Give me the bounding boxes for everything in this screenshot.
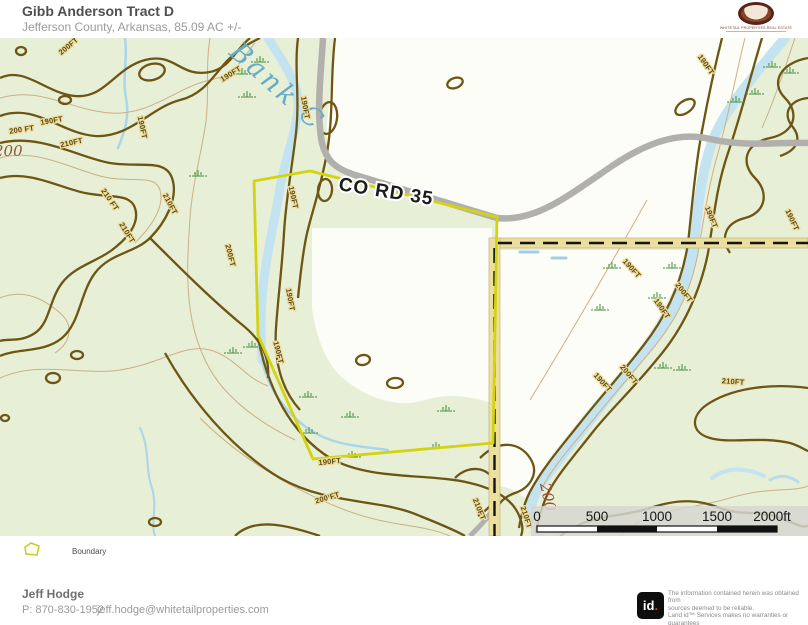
header: Gibb Anderson Tract D Jefferson County, … [0, 0, 808, 38]
scale-tick-label: 1000 [642, 509, 672, 524]
logo-divider [726, 31, 786, 32]
legend: Boundary [0, 536, 808, 570]
footer: Jeff Hodge P: 870-830-1952 jeff.hodge@wh… [0, 570, 808, 625]
scale-bar: 0500100015002000ft [531, 506, 808, 536]
whitetail-antler-oval-icon [738, 2, 774, 25]
agent-name: Jeff Hodge [22, 587, 84, 601]
disclaimer-line: Land id™ Services makes no warranties or… [668, 612, 806, 625]
map-report-page: Gibb Anderson Tract D Jefferson County, … [0, 0, 808, 625]
scale-tick-label: 1500 [702, 509, 732, 524]
page-title: Gibb Anderson Tract D [22, 3, 174, 19]
whitetail-properties-logo: WHITETAIL PROPERTIES REAL ESTATE [718, 2, 794, 32]
agent-email: jeff.hodge@whitetailproperties.com [97, 604, 269, 616]
page-subtitle: Jefferson County, Arkansas, 85.09 AC +/- [22, 20, 241, 34]
boundary-swatch-icon [24, 542, 40, 557]
disclaimer-line: sources deemed to be reliable. [668, 605, 806, 612]
map-canvas[interactable]: Bank C CO RD 35 200 200 200FT190FT190FT2… [0, 38, 808, 536]
contour-label: 210FT [722, 376, 745, 387]
scale-tick-label: 2000ft [753, 509, 791, 524]
land-id-logo: id. [637, 592, 664, 619]
scale-tick-label: 0 [533, 509, 541, 524]
elevation-label-left: 200 [0, 142, 23, 160]
disclaimer-line: The information contained herein was obt… [668, 590, 806, 605]
whitetail-logo-text: WHITETAIL PROPERTIES REAL ESTATE [718, 26, 794, 30]
agent-phone: P: 870-830-1952 [22, 604, 104, 616]
scale-tick-label: 500 [586, 509, 609, 524]
disclaimer-text: The information contained herein was obt… [668, 590, 806, 625]
legend-item-boundary: Boundary [72, 547, 106, 556]
